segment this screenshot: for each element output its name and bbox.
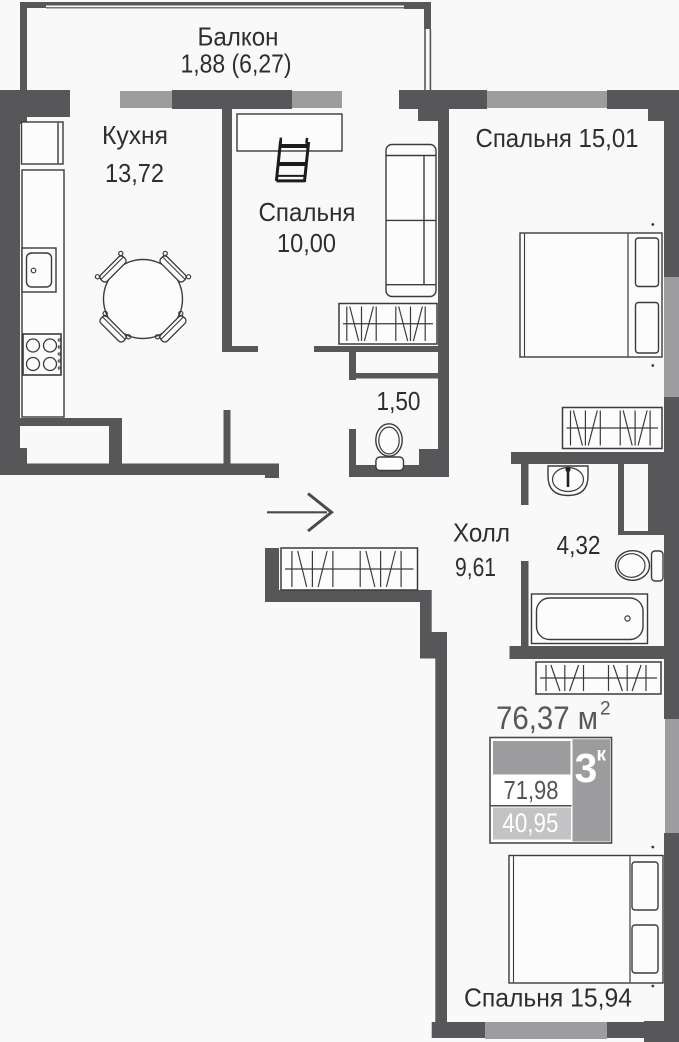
svg-text:Кухня: Кухня <box>102 120 168 150</box>
svg-text:1,50: 1,50 <box>377 386 421 416</box>
svg-text:Спальня: Спальня <box>259 197 356 227</box>
svg-text:13,72: 13,72 <box>105 158 164 188</box>
svg-text:71,98: 71,98 <box>504 775 559 805</box>
svg-text:76,37 м: 76,37 м <box>496 700 598 736</box>
svg-text:Холл: Холл <box>453 518 510 548</box>
svg-text:9,61: 9,61 <box>455 552 496 582</box>
svg-text:10,00: 10,00 <box>277 228 336 258</box>
svg-text:3: 3 <box>575 745 598 791</box>
svg-text:Балкон: Балкон <box>198 21 279 51</box>
svg-text:Спальня 15,94: Спальня 15,94 <box>464 983 632 1013</box>
svg-text:40,95: 40,95 <box>502 808 558 838</box>
svg-text:1,88 (6,27): 1,88 (6,27) <box>181 49 292 79</box>
svg-text:к: к <box>597 745 607 766</box>
svg-text:4,32: 4,32 <box>557 530 601 560</box>
svg-text:Спальня 15,01: Спальня 15,01 <box>476 123 639 153</box>
svg-text:2: 2 <box>600 699 611 720</box>
